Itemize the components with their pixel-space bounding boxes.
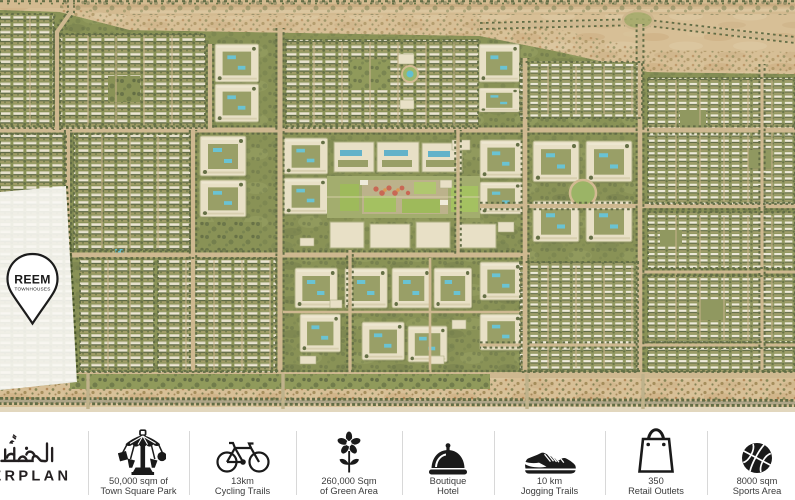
svg-text:TOWNHOUSES: TOWNHOUSES bbox=[14, 287, 50, 292]
svg-text:REEM: REEM bbox=[14, 273, 50, 287]
svg-text:ERPLAN: ERPLAN bbox=[0, 469, 71, 485]
